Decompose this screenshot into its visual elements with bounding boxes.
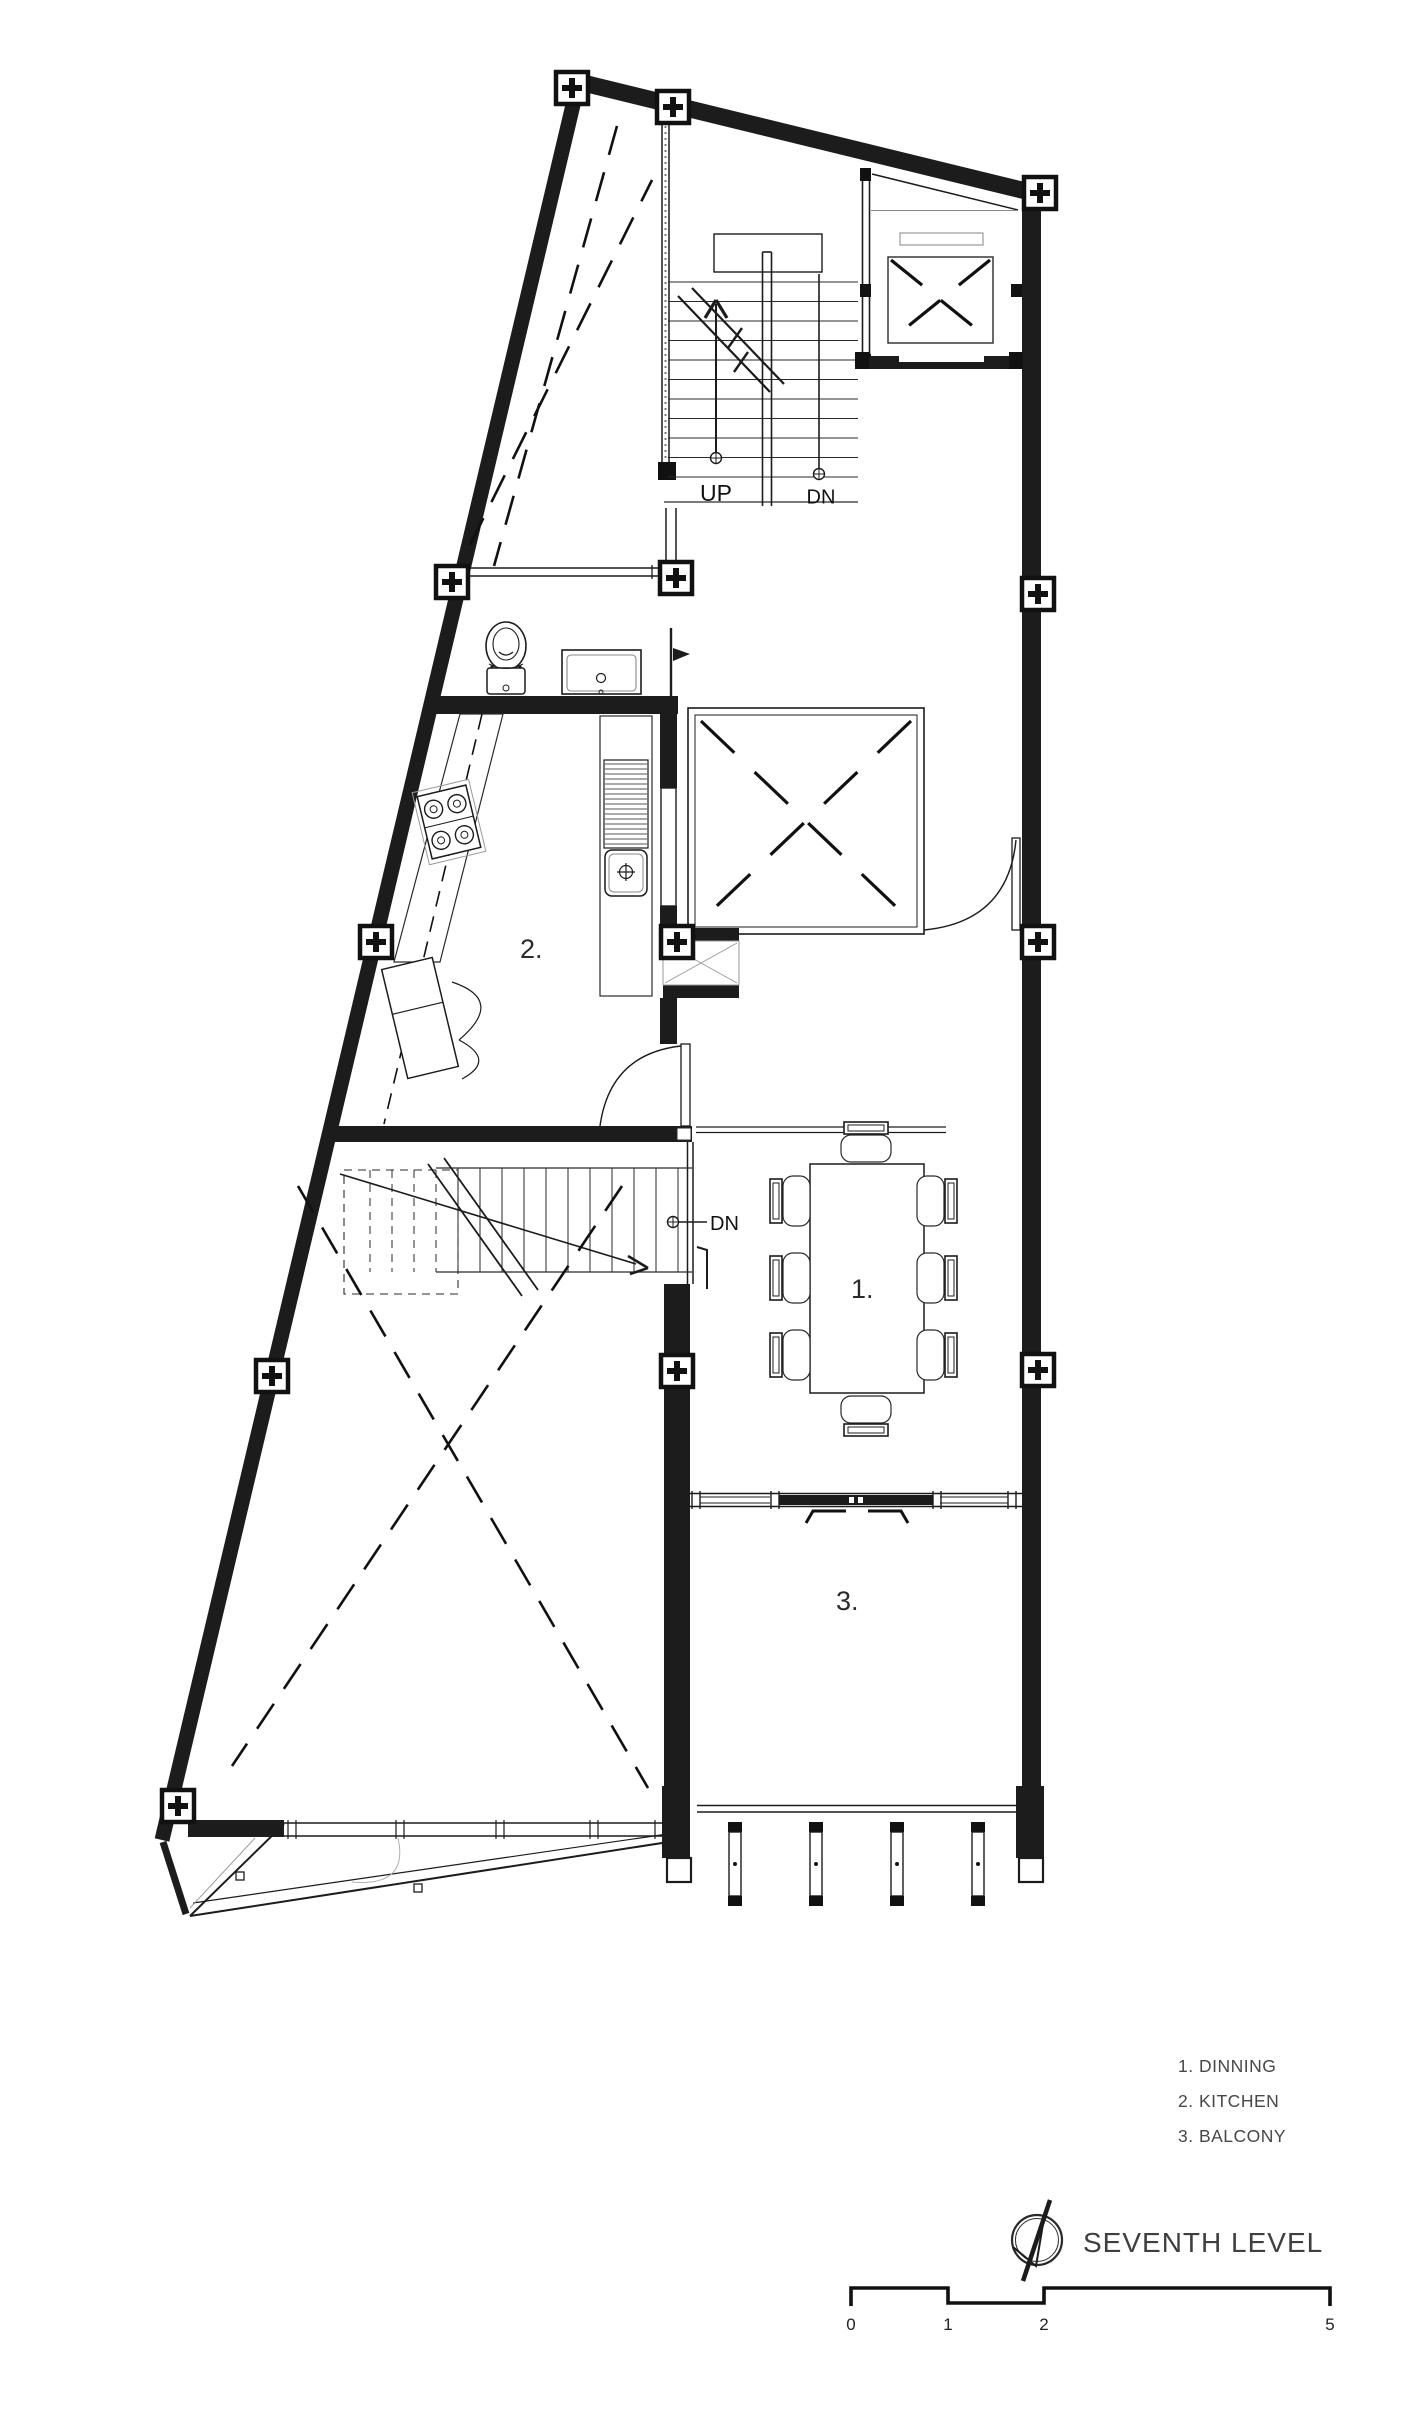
stair-arrow-icon	[628, 1256, 648, 1274]
north-arrow-icon	[1012, 2200, 1062, 2281]
dining-chair	[917, 1176, 957, 1226]
center-void-shaft	[600, 708, 1020, 1126]
stair-dn-label-main: DN	[710, 1213, 739, 1235]
legend-item-kitchen: 2. KITCHEN	[1178, 2091, 1279, 2111]
plan-title: SEVENTH LEVEL	[1083, 2227, 1323, 2258]
grid-marker	[360, 926, 392, 958]
grid-marker	[661, 1355, 693, 1387]
kitchen-cabinet	[382, 957, 481, 1079]
grid-marker	[660, 562, 692, 594]
slide-direction-arrow	[868, 1511, 908, 1523]
legend: 1. DINNING 2. KITCHEN 3. BALCONY	[1178, 2056, 1286, 2146]
dining-chair	[770, 1253, 810, 1303]
grid-marker	[436, 566, 468, 598]
toilet	[486, 622, 526, 694]
grid-column-markers	[162, 72, 1056, 1822]
door-swing-arc	[924, 840, 1016, 930]
scale-tick-1: 1	[943, 2315, 952, 2334]
dining-room: 1. DN	[668, 1122, 958, 1436]
dining-chair	[917, 1253, 957, 1303]
stair-up-label: UP	[700, 480, 732, 506]
main-stair-up: UP DN	[658, 118, 858, 566]
door-leaf	[1012, 838, 1020, 930]
floor-plan-page: UP DN	[0, 0, 1426, 2435]
title-block: SEVENTH LEVEL	[1012, 2200, 1323, 2281]
grid-marker	[1022, 1354, 1054, 1386]
room-number-kitchen: 2.	[520, 934, 543, 964]
kitchen	[382, 714, 652, 1124]
valve-flag-icon	[673, 648, 690, 661]
room-number-dining: 1.	[851, 1274, 874, 1304]
room-number-balcony: 3.	[836, 1586, 859, 1616]
stair-dn-label-top: DN	[807, 487, 836, 509]
grid-marker	[1022, 578, 1054, 610]
kitchen-island	[600, 716, 652, 996]
slide-direction-arrow	[806, 1511, 846, 1523]
scale-tick-0: 0	[846, 2315, 855, 2334]
scale-tick-2: 2	[1039, 2315, 1048, 2334]
kitchen-door-swing-arc	[600, 1046, 681, 1126]
grid-marker	[162, 1790, 194, 1822]
dining-chair	[841, 1396, 891, 1436]
sliding-door	[690, 1491, 1022, 1523]
grid-marker	[657, 91, 689, 123]
drainboard-hatch	[605, 764, 647, 844]
canopy	[188, 1820, 688, 1916]
elevator-shaft	[855, 168, 1023, 369]
legend-item-balcony: 3. BALCONY	[1178, 2126, 1286, 2146]
balcony-fins	[728, 1822, 985, 1906]
scale-bar: 0 1 2 5	[846, 2288, 1334, 2334]
void-dashed-x-top	[470, 126, 652, 566]
grid-marker	[1024, 177, 1056, 209]
grid-marker	[256, 1360, 288, 1392]
grid-marker	[556, 72, 588, 104]
legend-item-dining: 1. DINNING	[1178, 2056, 1276, 2076]
dining-chair	[917, 1330, 957, 1380]
dining-chair	[841, 1122, 891, 1162]
exterior-walls	[162, 80, 1042, 1914]
grid-marker	[1022, 926, 1054, 958]
scale-tick-5: 5	[1325, 2315, 1334, 2334]
dining-chair	[770, 1330, 810, 1380]
dining-chair	[770, 1176, 810, 1226]
vanity-sink	[562, 650, 641, 694]
grid-marker	[661, 926, 693, 958]
elevator-counterweight	[900, 233, 983, 245]
kitchen-door-leaf	[681, 1044, 690, 1126]
floor-plan-drawing: UP DN	[0, 0, 1426, 2435]
